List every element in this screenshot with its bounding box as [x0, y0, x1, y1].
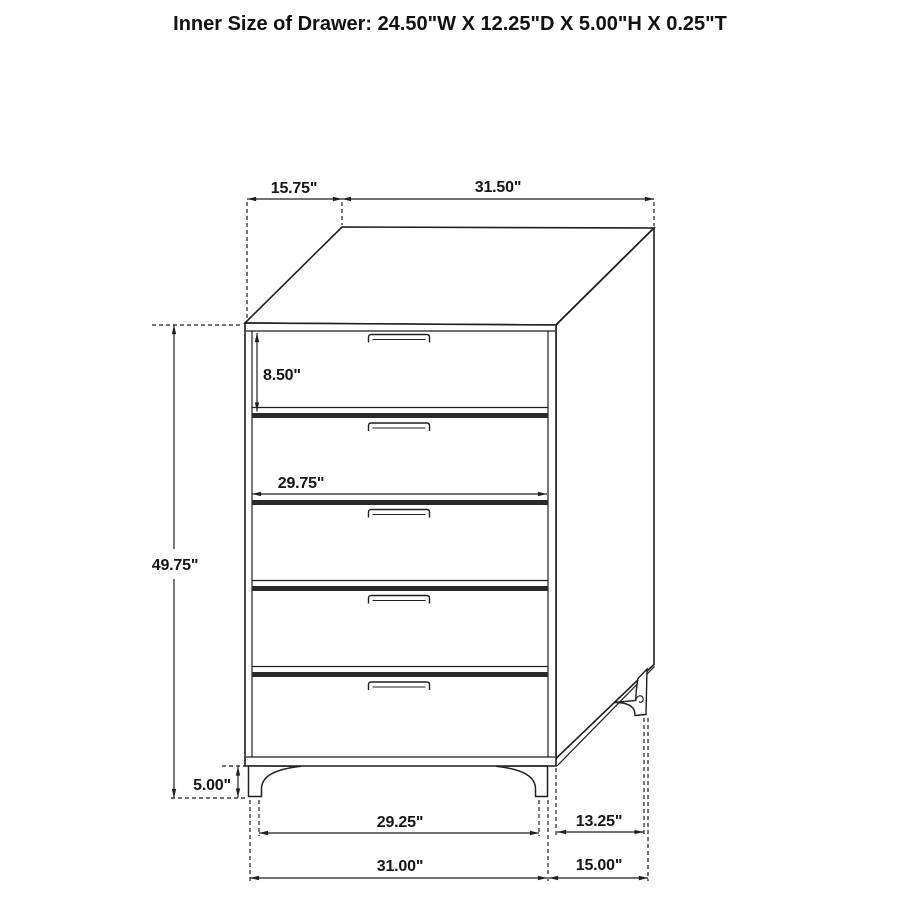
drawer-4-handle-icon — [369, 596, 430, 604]
drawer-2-handle-icon — [369, 423, 430, 431]
dim-label-side-depth-overall: 15.00" — [576, 857, 622, 874]
dim-label-top-width: 31.50" — [475, 179, 521, 196]
dim-label-front-leg-span: 29.25" — [377, 814, 423, 831]
dim-front-leg-span: 29.25" — [259, 814, 539, 833]
drawer-1-handle-icon — [369, 335, 430, 343]
dim-side-depth-overall: 15.00" — [549, 857, 648, 878]
drawer-5-handle-icon — [369, 682, 430, 690]
dim-label-top-depth: 15.75" — [271, 180, 317, 197]
dim-label-top-drawer-height: 8.50" — [263, 367, 301, 384]
dim-top-depth: 15.75" — [247, 180, 342, 199]
dim-front-width-overall: 31.00" — [250, 858, 547, 878]
dim-side-leg-span: 13.25" — [557, 813, 644, 832]
front-left-leg — [249, 766, 302, 797]
chest-dimension-diagram: 15.75" 31.50" 8.50" 29.75" 49.75" 5.00" — [0, 0, 900, 900]
front-face — [245, 323, 556, 766]
dim-label-side-leg-span: 13.25" — [576, 813, 622, 830]
dim-overall-height: 49.75" — [145, 325, 205, 798]
dim-label-front-width-overall: 31.00" — [377, 858, 423, 875]
chest-drawing — [245, 227, 655, 797]
dim-top-width: 31.50" — [342, 179, 654, 199]
dim-leg-height: 5.00" — [193, 767, 238, 798]
dim-label-drawer-front-width: 29.75" — [278, 475, 324, 492]
dim-label-overall-height: 49.75" — [152, 557, 198, 574]
front-right-leg — [496, 766, 548, 797]
dim-label-leg-height: 5.00" — [193, 777, 231, 794]
drawer-3-handle-icon — [369, 510, 430, 518]
